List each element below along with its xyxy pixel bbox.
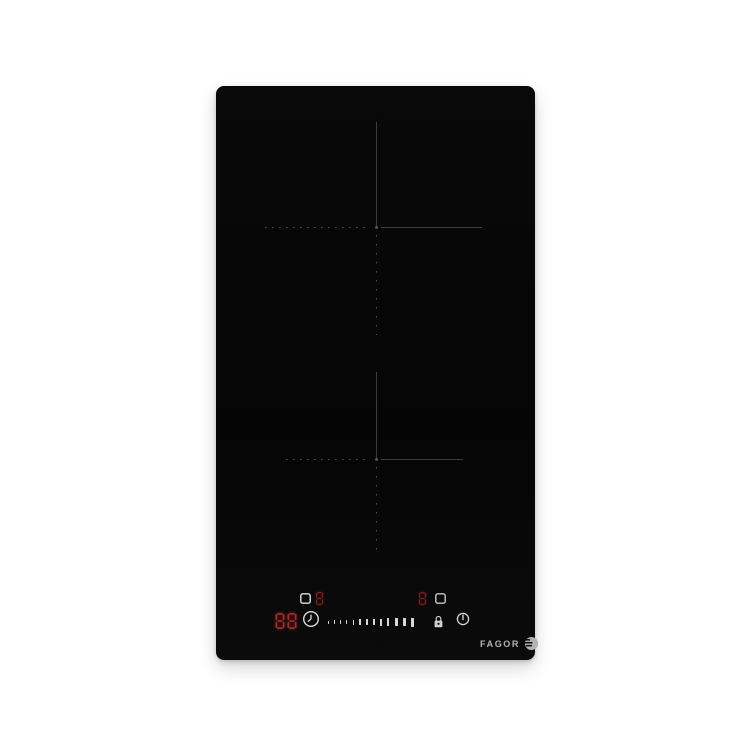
slider-level-mark[interactable] <box>328 621 329 624</box>
product-photo: FAGOR <box>0 0 750 750</box>
slider-level-mark[interactable] <box>380 619 382 626</box>
seven-segment-digit <box>418 592 427 605</box>
padlock-icon <box>434 615 443 628</box>
fagor-emblem-icon <box>524 636 539 651</box>
seven-segment-digit <box>275 613 285 629</box>
control-panel: FAGOR <box>216 86 535 660</box>
front-zone-power-display <box>418 592 427 605</box>
slider-level-mark[interactable] <box>411 618 414 627</box>
slider-level-mark[interactable] <box>359 619 361 625</box>
timer-display <box>275 613 297 629</box>
rear-zone-power-display <box>315 592 324 605</box>
slider-level-mark[interactable] <box>373 619 375 626</box>
seven-segment-digit <box>315 592 324 605</box>
pot-icon <box>300 593 311 604</box>
power-icon <box>456 612 470 626</box>
slider-level-mark[interactable] <box>353 620 354 625</box>
slider-level-mark[interactable] <box>387 618 389 626</box>
front-zone-select-key[interactable] <box>435 593 446 604</box>
pot-icon <box>435 593 446 604</box>
slider-level-mark[interactable] <box>395 618 398 626</box>
child-lock-key[interactable] <box>434 613 443 632</box>
slider-level-mark[interactable] <box>403 618 406 627</box>
power-key[interactable] <box>456 611 470 630</box>
brand-name: FAGOR <box>480 639 520 649</box>
induction-cooktop-glass: FAGOR <box>216 86 535 660</box>
slider-level-mark[interactable] <box>346 620 347 625</box>
brand-logo: FAGOR <box>480 636 539 651</box>
slider-level-mark[interactable] <box>340 620 341 624</box>
clock-icon <box>302 610 320 628</box>
timer-key[interactable] <box>302 610 320 632</box>
slider-level-mark[interactable] <box>366 619 368 625</box>
seven-segment-digit <box>287 613 297 629</box>
power-slider[interactable] <box>328 616 414 628</box>
rear-zone-select-key[interactable] <box>300 593 311 604</box>
slider-level-mark[interactable] <box>334 620 335 624</box>
